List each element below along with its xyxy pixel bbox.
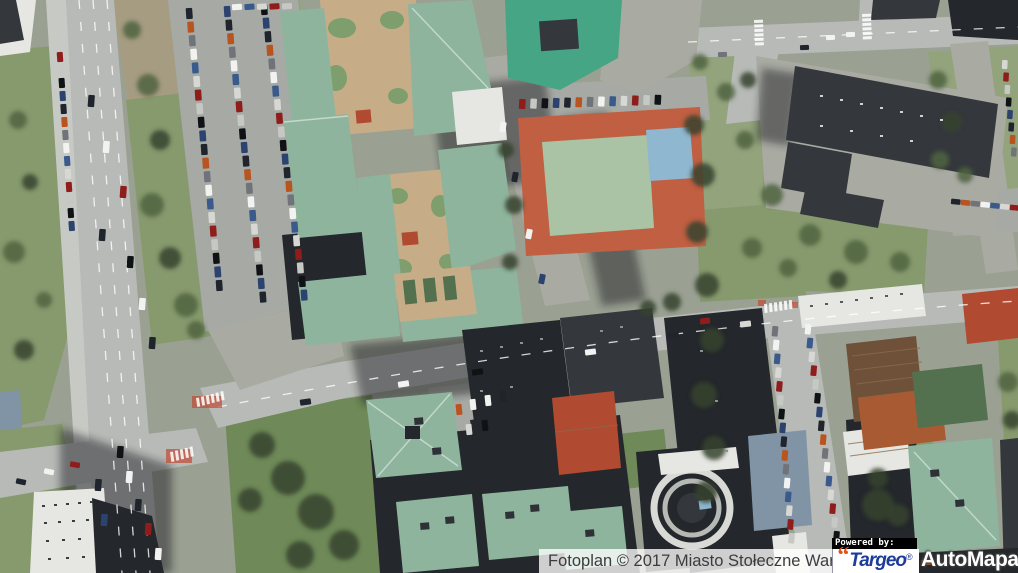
car [775, 367, 782, 378]
window-speck [700, 350, 703, 352]
crosswalk-stripe [754, 33, 763, 36]
car [232, 74, 239, 85]
car [66, 182, 73, 192]
car [826, 35, 835, 40]
car [291, 221, 298, 232]
car [59, 91, 66, 101]
car [278, 126, 285, 137]
window-speck [900, 293, 903, 295]
crosswalk-stripe [754, 20, 763, 23]
car [67, 195, 74, 205]
car [68, 221, 75, 231]
car [263, 17, 270, 28]
car [225, 19, 232, 30]
window-speck [72, 520, 75, 522]
window-speck [90, 501, 93, 503]
car [251, 223, 258, 234]
car [553, 98, 560, 108]
crosswalk-stripe [862, 27, 871, 30]
tree [123, 21, 141, 39]
car [237, 115, 244, 126]
car [135, 499, 142, 511]
car [818, 420, 825, 431]
window-speck [920, 115, 923, 117]
car [190, 49, 197, 60]
tree [799, 224, 821, 246]
roof-dormer [420, 522, 430, 530]
car [224, 6, 231, 17]
window-speck [885, 295, 888, 297]
window-speck [900, 111, 903, 113]
car [266, 45, 273, 56]
automapa-wordmark: AutoMapa [921, 548, 1018, 571]
tree [702, 436, 726, 460]
tree [931, 151, 949, 169]
tree [249, 432, 275, 458]
car [269, 3, 279, 10]
tree [929, 71, 947, 89]
car [980, 202, 990, 208]
roof-dormer [414, 417, 424, 425]
car [990, 203, 1000, 209]
red-roof-building [552, 391, 621, 475]
aerial-imagery [0, 0, 1018, 573]
car [299, 276, 306, 287]
tree [3, 241, 25, 263]
car [1003, 72, 1009, 81]
car [1011, 147, 1017, 156]
car [295, 249, 302, 260]
car [60, 104, 67, 114]
window-speck [78, 502, 81, 504]
car [620, 96, 627, 106]
car [780, 436, 787, 447]
car [810, 365, 817, 376]
window-speck [940, 119, 943, 121]
car [249, 210, 256, 221]
window-speck [810, 305, 813, 307]
car [227, 33, 234, 44]
tree [502, 254, 518, 270]
window-speck [78, 538, 81, 540]
car [484, 395, 491, 407]
window-speck [715, 400, 718, 402]
car [67, 208, 74, 218]
car [199, 130, 206, 141]
targeo-registered-mark: ® [906, 552, 913, 562]
car [198, 117, 205, 128]
car [598, 96, 605, 106]
car [609, 96, 616, 106]
tree [761, 184, 783, 206]
car [564, 97, 571, 107]
window-speck [54, 504, 57, 506]
window-speck [870, 297, 873, 299]
car [62, 130, 69, 140]
car [643, 95, 650, 105]
car [772, 326, 779, 337]
crosswalk-stripe [769, 303, 773, 312]
car [1010, 135, 1016, 144]
window-speck [520, 342, 523, 344]
tree [862, 489, 894, 521]
tree [498, 142, 514, 158]
car [1007, 110, 1013, 119]
car [232, 4, 242, 11]
window-speck [600, 330, 603, 332]
window-speck [42, 505, 45, 507]
window-speck [500, 346, 503, 348]
crosswalk-stripe [754, 29, 763, 32]
tree [868, 468, 888, 488]
tree [271, 461, 305, 495]
car [65, 169, 72, 179]
car [208, 212, 215, 223]
car [1000, 204, 1010, 210]
car [822, 448, 829, 459]
car [254, 251, 261, 262]
tree [640, 300, 656, 316]
window-speck [82, 556, 85, 558]
tree [717, 83, 735, 101]
car [99, 229, 106, 241]
car [812, 379, 819, 390]
car [214, 266, 221, 277]
car [259, 291, 266, 302]
car [229, 47, 236, 58]
roof-dormer [530, 504, 540, 512]
crosswalk-stripe [755, 42, 764, 45]
window-speck [880, 107, 883, 109]
window-speck [820, 125, 823, 127]
car [820, 434, 827, 445]
tree [663, 293, 681, 311]
car [230, 60, 237, 71]
car [961, 200, 971, 206]
car [205, 185, 212, 196]
car [287, 194, 294, 205]
tree [286, 541, 314, 569]
car [779, 422, 786, 433]
blue-court [646, 127, 694, 181]
car [700, 317, 711, 324]
car [186, 8, 193, 19]
window-speck [820, 95, 823, 97]
car [282, 153, 289, 164]
tree [942, 112, 962, 132]
car [236, 101, 243, 112]
roof-dormer [445, 516, 455, 524]
car [280, 140, 287, 151]
car [187, 21, 194, 32]
car [1010, 205, 1018, 211]
tree [740, 72, 756, 88]
crosswalk-stripe [789, 300, 793, 309]
car [126, 471, 133, 483]
window-speck [880, 135, 883, 137]
car [207, 198, 214, 209]
window-speck [540, 338, 543, 340]
tree [742, 238, 762, 258]
car [258, 278, 265, 289]
car [239, 128, 246, 139]
tree [36, 292, 52, 308]
window-speck [86, 519, 89, 521]
car [195, 89, 202, 100]
crosswalk-stripe [779, 302, 783, 311]
tree [298, 494, 334, 530]
car [246, 183, 253, 194]
car [58, 78, 65, 88]
car [95, 479, 102, 491]
tree [14, 340, 34, 360]
tree [159, 247, 181, 269]
roof-dormer [585, 529, 595, 537]
crosswalk-stripe [784, 301, 788, 310]
tree [695, 273, 719, 297]
tree [700, 328, 724, 352]
car [777, 395, 784, 406]
tree [692, 54, 708, 70]
car [297, 262, 304, 273]
tree [779, 259, 797, 277]
car [293, 235, 300, 246]
car [196, 103, 203, 114]
window-speck [66, 557, 69, 559]
car [241, 142, 248, 153]
window-speck [510, 386, 513, 388]
car [970, 201, 980, 207]
window-speck [855, 299, 858, 301]
targeo-wordmark: Targeo [849, 550, 906, 572]
car [270, 72, 277, 83]
car [242, 155, 249, 166]
window-speck [48, 558, 51, 560]
tree [329, 530, 359, 560]
car [285, 181, 292, 192]
car [145, 523, 152, 535]
car [774, 353, 781, 364]
school-sports-field [518, 107, 706, 256]
car [274, 99, 281, 110]
car [282, 3, 292, 10]
car [786, 505, 793, 516]
car [846, 32, 855, 37]
car [103, 141, 110, 153]
car [127, 256, 134, 268]
tree [691, 382, 717, 408]
map-attribution-bar: Fotoplan © 2017 Miasto Stołeczne Warszaw… [539, 549, 840, 573]
car [244, 169, 251, 180]
car [541, 98, 548, 108]
car [149, 337, 156, 349]
car [776, 381, 783, 392]
window-speck [46, 540, 49, 542]
roof-dormer [955, 499, 965, 507]
pitch [542, 135, 654, 236]
car [831, 517, 838, 528]
car [213, 253, 220, 264]
car [192, 62, 199, 73]
car [825, 476, 832, 487]
window-speck [480, 390, 483, 392]
window-speck [58, 521, 61, 523]
window-speck [860, 103, 863, 105]
car [210, 225, 217, 236]
window-speck [850, 130, 853, 132]
tree [998, 372, 1018, 392]
car [120, 186, 127, 198]
car [88, 95, 95, 107]
car [1006, 97, 1012, 106]
car [283, 167, 290, 178]
tree [505, 196, 523, 214]
car [301, 289, 308, 300]
car [1008, 122, 1014, 131]
car [257, 3, 267, 10]
slate-roof-building [748, 430, 812, 531]
automapa-logo[interactable]: AutoMapa® [921, 548, 1018, 572]
tree [238, 488, 262, 512]
map-viewport[interactable]: Fotoplan © 2017 Miasto Stołeczne Warszaw… [0, 0, 1018, 573]
tree [22, 174, 38, 190]
tree [174, 293, 198, 317]
car [814, 393, 821, 404]
tree [150, 130, 170, 150]
window-speck [825, 303, 828, 305]
car [740, 320, 752, 327]
car [800, 45, 809, 50]
car [272, 85, 279, 96]
car [587, 97, 594, 107]
car [63, 143, 70, 153]
car [256, 264, 263, 275]
car [234, 87, 241, 98]
tree [829, 271, 847, 289]
car [155, 548, 162, 560]
car [268, 58, 275, 69]
car [469, 399, 476, 411]
car [1002, 60, 1008, 69]
car [824, 462, 831, 473]
car [805, 324, 812, 335]
car [1004, 85, 1010, 94]
tree [137, 74, 159, 96]
window-speck [840, 99, 843, 101]
car [57, 52, 64, 62]
crosswalk-stripe [863, 36, 872, 39]
car [201, 144, 208, 155]
car [951, 199, 961, 205]
roof-dormer [505, 511, 515, 519]
car [247, 196, 254, 207]
crosswalk-stripe [754, 24, 763, 27]
car [58, 65, 65, 75]
roof-dormer [432, 447, 442, 455]
car [773, 340, 780, 351]
window-speck [480, 350, 483, 352]
car [276, 113, 283, 124]
window-speck [910, 140, 913, 142]
car [204, 171, 211, 182]
window-speck [66, 503, 69, 505]
car [481, 420, 488, 432]
car [211, 239, 218, 250]
tree [695, 481, 717, 503]
car [788, 533, 795, 544]
tree [691, 163, 715, 187]
tree [686, 221, 708, 243]
tree [957, 167, 973, 183]
targeo-logo[interactable]: “Targeo® [832, 549, 919, 573]
car [193, 76, 200, 87]
car [101, 514, 108, 526]
car [61, 117, 68, 127]
car [519, 99, 526, 109]
car [816, 407, 823, 418]
car [465, 424, 472, 436]
car [117, 446, 124, 458]
car [829, 503, 836, 514]
car [718, 52, 727, 57]
tree [9, 111, 27, 129]
tree [844, 240, 868, 264]
car [632, 95, 639, 105]
car [575, 97, 582, 107]
tree [684, 115, 704, 135]
car [806, 338, 813, 349]
car [530, 98, 537, 108]
car [808, 351, 815, 362]
car [827, 489, 834, 500]
crosswalk-stripe [774, 302, 778, 311]
olive-roof-building [912, 364, 988, 428]
targeo-quote-mark: “ [837, 552, 849, 560]
window-speck [840, 301, 843, 303]
car [264, 31, 271, 42]
roof-dormer [930, 469, 940, 477]
tree [736, 131, 754, 149]
car [189, 35, 196, 46]
crosswalk-stripe [755, 38, 764, 41]
window-speck [44, 522, 47, 524]
car [202, 157, 209, 168]
car [784, 478, 791, 489]
car [785, 491, 792, 502]
car [253, 237, 260, 248]
car [778, 409, 785, 420]
car [455, 404, 462, 416]
window-speck [62, 539, 65, 541]
car [499, 391, 506, 403]
car [244, 3, 254, 10]
crosswalk-stripe [863, 32, 872, 35]
window-speck [725, 450, 728, 452]
car [787, 519, 794, 530]
tree [140, 193, 164, 217]
crosswalk-stripe [862, 14, 871, 17]
car [216, 280, 223, 291]
crosswalk-stripe [764, 304, 768, 313]
tree [890, 252, 910, 272]
car [139, 298, 146, 310]
car [781, 450, 788, 461]
car [654, 95, 661, 105]
crosswalk-stripe [862, 18, 871, 21]
crosswalk-stripe [862, 23, 871, 26]
car [64, 156, 71, 166]
car [289, 208, 296, 219]
